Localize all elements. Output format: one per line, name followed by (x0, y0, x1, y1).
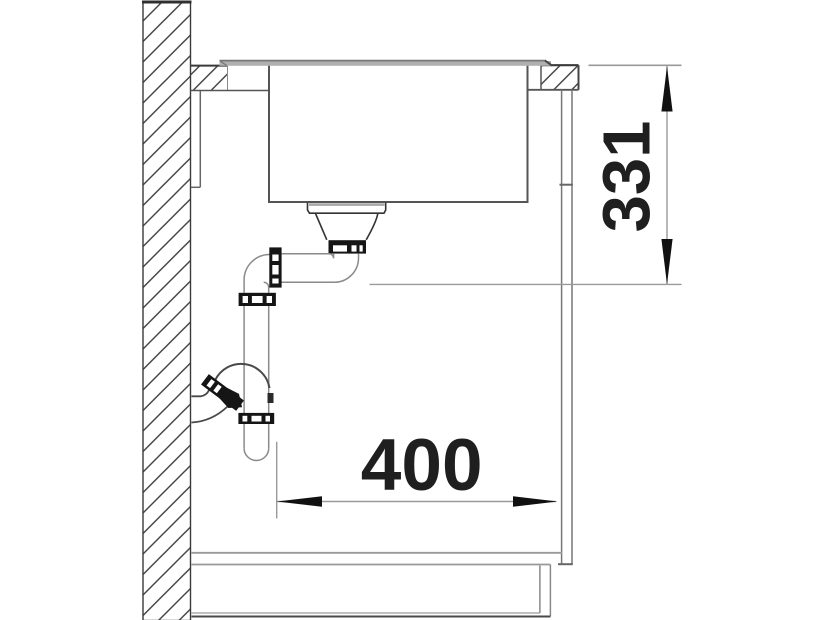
svg-text:400: 400 (361, 425, 483, 506)
svg-text:331: 331 (590, 121, 665, 233)
